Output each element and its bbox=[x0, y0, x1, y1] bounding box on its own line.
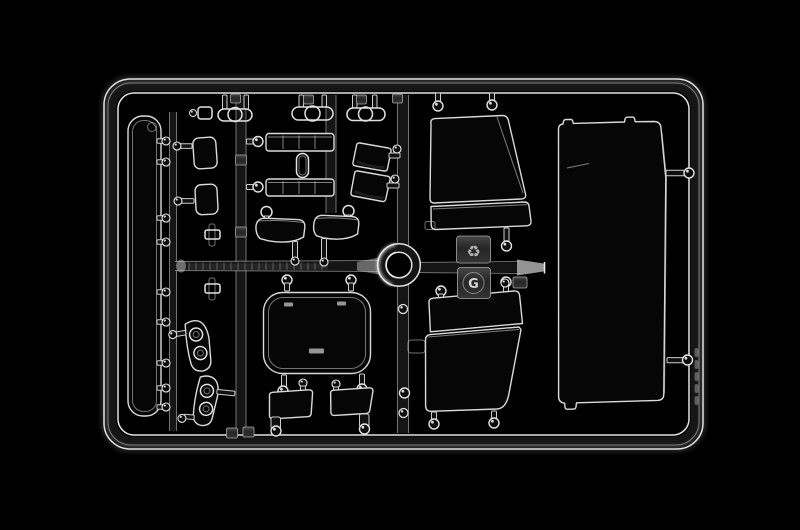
photo-canvas: ♻ G bbox=[0, 0, 800, 530]
sprue-letter: G bbox=[468, 277, 479, 292]
recycling-tag: ♻ bbox=[457, 236, 491, 263]
sprue-photo: ♻ G bbox=[0, 0, 800, 530]
runner-emboss-texture bbox=[188, 263, 328, 271]
sprue-letter-tag: G bbox=[458, 268, 491, 299]
recycling-icon: ♻ bbox=[466, 242, 480, 261]
